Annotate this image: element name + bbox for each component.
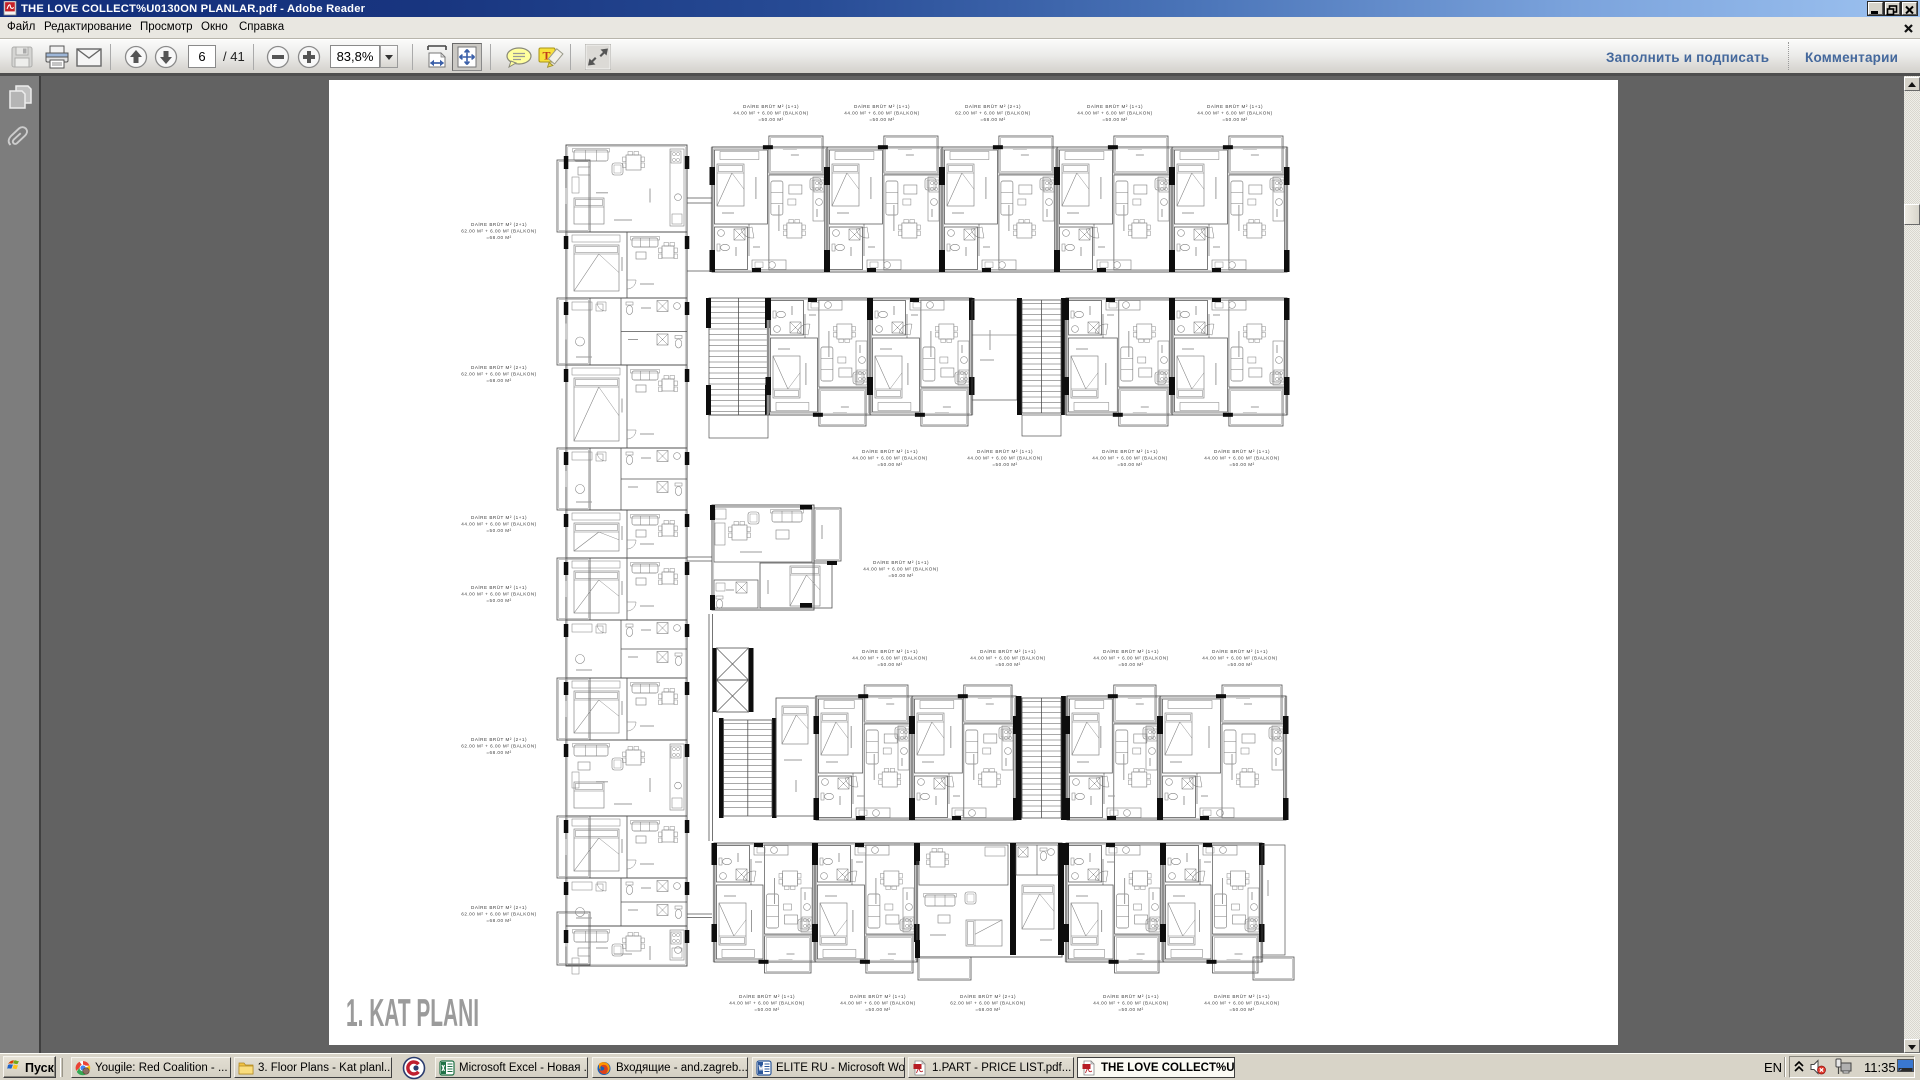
svg-text:DAİRE BRÜT M² (2+1): DAİRE BRÜT M² (2+1): [960, 993, 1016, 999]
svg-text:44.00 M² + 6.00 M² (BALKON): 44.00 M² + 6.00 M² (BALKON): [461, 522, 536, 527]
svg-text:DAİRE BRÜT M² (1+1): DAİRE BRÜT M² (1+1): [850, 993, 906, 999]
svg-text:=50.00 M²: =50.00 M²: [992, 462, 1017, 467]
svg-text:62.00 M² + 6.00 M² (BALKON): 62.00 M² + 6.00 M² (BALKON): [461, 744, 536, 749]
svg-text:DAİRE BRÜT M² (1+1): DAİRE BRÜT M² (1+1): [980, 648, 1036, 654]
svg-text:=50.00 M²: =50.00 M²: [1118, 1007, 1143, 1012]
svg-text:DAİRE BRÜT M² (1+1): DAİRE BRÜT M² (1+1): [1087, 103, 1143, 109]
svg-text:=50.00 M²: =50.00 M²: [1117, 462, 1142, 467]
svg-text:=68.00 M²: =68.00 M²: [486, 750, 511, 755]
svg-text:=50.00 M²: =50.00 M²: [486, 598, 511, 603]
svg-text:DAİRE BRÜT M² (1+1): DAİRE BRÜT M² (1+1): [873, 559, 929, 565]
svg-text:DAİRE BRÜT M² (2+1): DAİRE BRÜT M² (2+1): [471, 221, 527, 227]
svg-text:62.00 M² + 6.00 M² (BALKON): 62.00 M² + 6.00 M² (BALKON): [950, 1001, 1025, 1006]
svg-text:DAİRE BRÜT M² (1+1): DAİRE BRÜT M² (1+1): [743, 103, 799, 109]
svg-text:=50.00 M²: =50.00 M²: [888, 573, 913, 578]
svg-text:DAİRE BRÜT M² (1+1): DAİRE BRÜT M² (1+1): [862, 648, 918, 654]
svg-text:DAİRE BRÜT M² (1+1): DAİRE BRÜT M² (1+1): [471, 514, 527, 520]
svg-text:=50.00 M²: =50.00 M²: [1102, 117, 1127, 122]
svg-text:62.00 M² + 6.00 M² (BALKON): 62.00 M² + 6.00 M² (BALKON): [461, 372, 536, 377]
svg-text:DAİRE BRÜT M² (1+1): DAİRE BRÜT M² (1+1): [471, 584, 527, 590]
svg-text:=68.00 M²: =68.00 M²: [486, 235, 511, 240]
svg-text:=68.00 M²: =68.00 M²: [980, 117, 1005, 122]
svg-text:44.00 M² + 6.00 M² (BALKON): 44.00 M² + 6.00 M² (BALKON): [461, 592, 536, 597]
svg-text:44.00 M² + 6.00 M² (BALKON): 44.00 M² + 6.00 M² (BALKON): [970, 656, 1045, 661]
svg-text:1. KAT PLANI: 1. KAT PLANI: [346, 992, 479, 1035]
svg-text:DAİRE BRÜT M² (1+1): DAİRE BRÜT M² (1+1): [1207, 103, 1263, 109]
svg-text:=50.00 M²: =50.00 M²: [877, 462, 902, 467]
svg-text:DAİRE BRÜT M² (1+1): DAİRE BRÜT M² (1+1): [862, 448, 918, 454]
svg-text:DAİRE BRÜT M² (1+1): DAİRE BRÜT M² (1+1): [854, 103, 910, 109]
svg-text:DAİRE BRÜT M² (1+1): DAİRE BRÜT M² (1+1): [1103, 993, 1159, 999]
svg-text:=68.00 M²: =68.00 M²: [486, 918, 511, 923]
svg-text:44.00 M² + 6.00 M² (BALKON): 44.00 M² + 6.00 M² (BALKON): [729, 1001, 804, 1006]
svg-text:44.00 M² + 6.00 M² (BALKON): 44.00 M² + 6.00 M² (BALKON): [852, 656, 927, 661]
svg-text:44.00 M² + 6.00 M² (BALKON): 44.00 M² + 6.00 M² (BALKON): [844, 111, 919, 116]
svg-text:DAİRE BRÜT M² (1+1): DAİRE BRÜT M² (1+1): [739, 993, 795, 999]
svg-text:=50.00 M²: =50.00 M²: [758, 117, 783, 122]
svg-text:44.00 M² + 6.00 M² (BALKON): 44.00 M² + 6.00 M² (BALKON): [1202, 656, 1277, 661]
svg-text:DAİRE BRÜT M² (1+1): DAİRE BRÜT M² (1+1): [1214, 993, 1270, 999]
svg-text:=68.00 M²: =68.00 M²: [975, 1007, 1000, 1012]
svg-text:DAİRE BRÜT M² (1+1): DAİRE BRÜT M² (1+1): [1103, 648, 1159, 654]
svg-text:=50.00 M²: =50.00 M²: [1229, 1007, 1254, 1012]
svg-text:44.00 M² + 6.00 M² (BALKON): 44.00 M² + 6.00 M² (BALKON): [852, 456, 927, 461]
svg-text:44.00 M² + 6.00 M² (BALKON): 44.00 M² + 6.00 M² (BALKON): [1093, 656, 1168, 661]
svg-text:=50.00 M²: =50.00 M²: [1222, 117, 1247, 122]
svg-text:44.00 M² + 6.00 M² (BALKON): 44.00 M² + 6.00 M² (BALKON): [1204, 456, 1279, 461]
svg-text:=50.00 M²: =50.00 M²: [995, 662, 1020, 667]
svg-text:DAİRE BRÜT M² (2+1): DAİRE BRÜT M² (2+1): [471, 736, 527, 742]
svg-text:44.00 M² + 6.00 M² (BALKON): 44.00 M² + 6.00 M² (BALKON): [863, 567, 938, 572]
svg-text:44.00 M² + 6.00 M² (BALKON): 44.00 M² + 6.00 M² (BALKON): [1204, 1001, 1279, 1006]
svg-text:=50.00 M²: =50.00 M²: [1118, 662, 1143, 667]
svg-text:=50.00 M²: =50.00 M²: [1229, 462, 1254, 467]
svg-text:=50.00 M²: =50.00 M²: [754, 1007, 779, 1012]
svg-text:44.00 M² + 6.00 M² (BALKON): 44.00 M² + 6.00 M² (BALKON): [840, 1001, 915, 1006]
svg-text:=50.00 M²: =50.00 M²: [486, 528, 511, 533]
svg-text:=50.00 M²: =50.00 M²: [865, 1007, 890, 1012]
svg-text:DAİRE BRÜT M² (2+1): DAİRE BRÜT M² (2+1): [471, 364, 527, 370]
svg-text:62.00 M² + 6.00 M² (BALKON): 62.00 M² + 6.00 M² (BALKON): [461, 912, 536, 917]
svg-text:DAİRE BRÜT M² (1+1): DAİRE BRÜT M² (1+1): [1214, 448, 1270, 454]
svg-text:=50.00 M²: =50.00 M²: [877, 662, 902, 667]
svg-text:44.00 M² + 6.00 M² (BALKON): 44.00 M² + 6.00 M² (BALKON): [1077, 111, 1152, 116]
svg-text:=50.00 M²: =50.00 M²: [1227, 662, 1252, 667]
svg-text:44.00 M² + 6.00 M² (BALKON): 44.00 M² + 6.00 M² (BALKON): [733, 111, 808, 116]
svg-text:T: T: [543, 49, 551, 63]
svg-text:=68.00 M²: =68.00 M²: [486, 378, 511, 383]
svg-text:62.00 M² + 6.00 M² (BALKON): 62.00 M² + 6.00 M² (BALKON): [461, 229, 536, 234]
svg-text:DAİRE BRÜT M² (2+1): DAİRE BRÜT M² (2+1): [471, 904, 527, 910]
svg-text:44.00 M² + 6.00 M² (BALKON): 44.00 M² + 6.00 M² (BALKON): [1093, 1001, 1168, 1006]
svg-text:44.00 M² + 6.00 M² (BALKON): 44.00 M² + 6.00 M² (BALKON): [1092, 456, 1167, 461]
svg-text:DAİRE BRÜT M² (1+1): DAİRE BRÜT M² (1+1): [1102, 448, 1158, 454]
svg-text:=50.00 M²: =50.00 M²: [869, 117, 894, 122]
svg-text:44.00 M² + 6.00 M² (BALKON): 44.00 M² + 6.00 M² (BALKON): [1197, 111, 1272, 116]
svg-text:DAİRE BRÜT M² (1+1): DAİRE BRÜT M² (1+1): [1212, 648, 1268, 654]
svg-text:62.00 M² + 6.00 M² (BALKON): 62.00 M² + 6.00 M² (BALKON): [955, 111, 1030, 116]
svg-text:DAİRE BRÜT M² (2+1): DAİRE BRÜT M² (2+1): [965, 103, 1021, 109]
svg-text:44.00 M² + 6.00 M² (BALKON): 44.00 M² + 6.00 M² (BALKON): [967, 456, 1042, 461]
svg-text:DAİRE BRÜT M² (1+1): DAİRE BRÜT M² (1+1): [977, 448, 1033, 454]
